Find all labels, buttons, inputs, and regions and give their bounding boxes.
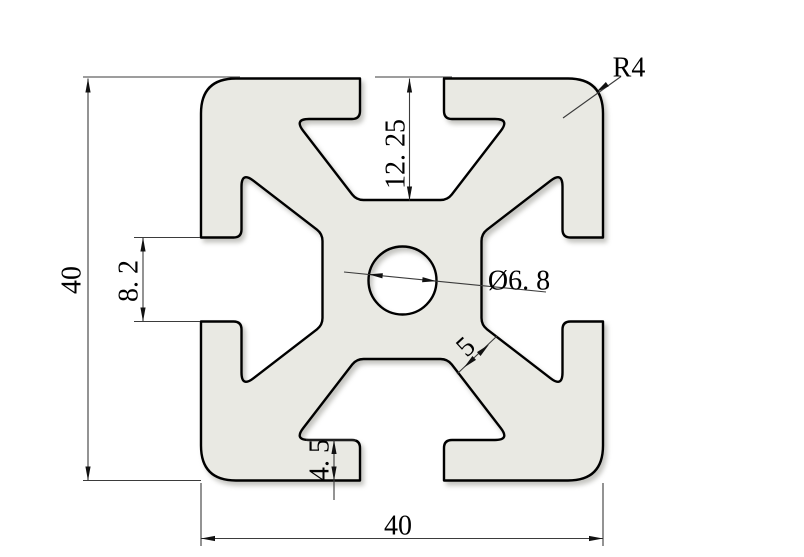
slot-depth-label: 12. 25 — [381, 119, 412, 189]
dimension-arrowhead — [140, 238, 145, 252]
overall-width-label: 40 — [384, 511, 412, 542]
drawing-canvas: 40 40 12. 25 8. 2 4. 5 5 Ø6. 8 R4 — [0, 0, 804, 557]
dimension-arrowhead — [140, 308, 145, 322]
corner-radius-label: R4 — [613, 53, 646, 84]
dimension-arrowhead — [407, 79, 412, 93]
dimension-arrowhead — [596, 82, 609, 92]
center-hole-diameter-label: Ø6. 8 — [488, 266, 550, 297]
slot-opening-label: 8. 2 — [114, 260, 145, 302]
dimension-arrowhead — [201, 536, 215, 541]
overall-height-label: 40 — [57, 266, 88, 294]
dimension-arrowhead — [85, 467, 90, 481]
extrusion-profile-drawing: 40 40 12. 25 8. 2 4. 5 5 Ø6. 8 R4 — [0, 0, 804, 557]
dimension-arrowhead — [85, 79, 90, 93]
dimension-arrowhead — [422, 277, 436, 282]
dimension-arrowhead — [589, 536, 603, 541]
dimension-arrowhead — [369, 273, 383, 278]
lip-thickness-label: 4. 5 — [305, 439, 336, 481]
